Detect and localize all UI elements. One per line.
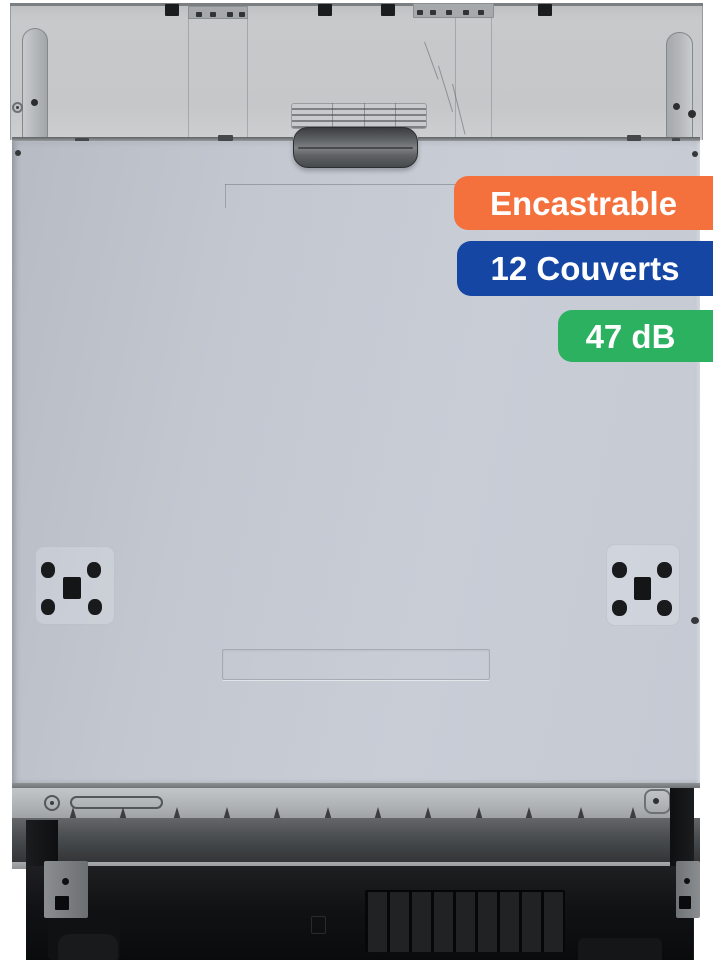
underside-shadow-panel bbox=[12, 818, 700, 866]
top-slot bbox=[318, 4, 332, 16]
vent-divider bbox=[364, 103, 365, 129]
badge-noise-level-label: 47 dB bbox=[586, 320, 676, 353]
badge-couverts-label: 12 Couverts bbox=[491, 252, 680, 285]
dishwasher-product-image: Encastrable 12 Couverts 47 dB bbox=[0, 0, 713, 960]
door-film-seam bbox=[225, 184, 226, 208]
screw-hole bbox=[657, 600, 672, 616]
leveling-bracket-right bbox=[676, 861, 700, 918]
bracket-hole bbox=[430, 10, 436, 15]
panel-seam bbox=[491, 18, 492, 138]
screw-hole bbox=[41, 599, 55, 615]
panel-seam bbox=[455, 18, 456, 138]
side-mounting-rail-right bbox=[666, 32, 693, 139]
vent-grille bbox=[291, 103, 427, 129]
side-mounting-rail-left bbox=[22, 28, 48, 139]
base-wheel-left bbox=[58, 934, 118, 960]
bracket-dot bbox=[62, 878, 69, 885]
door-handle-crease bbox=[298, 147, 413, 149]
screw-ring bbox=[12, 102, 23, 113]
bracket-hole bbox=[478, 10, 484, 15]
adjustment-slot bbox=[70, 796, 163, 809]
base-foot-right bbox=[578, 938, 662, 960]
door-pin-dot bbox=[691, 617, 699, 624]
bracket-hole bbox=[210, 12, 216, 17]
bracket-hole bbox=[417, 10, 423, 15]
door-pin-dot bbox=[692, 151, 698, 157]
badge-couverts: 12 Couverts bbox=[457, 241, 713, 296]
base-square-hole bbox=[311, 916, 326, 934]
screw-hole bbox=[88, 599, 102, 615]
top-slot bbox=[381, 4, 395, 16]
screw-hole bbox=[87, 562, 101, 578]
bracket-hole bbox=[239, 12, 245, 17]
bracket-dot bbox=[684, 878, 690, 884]
screw-hole bbox=[657, 562, 672, 578]
screw-hole bbox=[41, 562, 55, 578]
square-cutout bbox=[634, 577, 651, 600]
badge-encastrable: Encastrable bbox=[454, 176, 713, 230]
bracket-square-hole bbox=[55, 896, 69, 910]
hinge-circle bbox=[44, 795, 60, 811]
top-slot bbox=[538, 4, 552, 16]
screw-dot bbox=[688, 110, 696, 118]
bracket-hole bbox=[463, 10, 469, 15]
badge-encastrable-label: Encastrable bbox=[490, 187, 677, 220]
bracket-square-hole bbox=[679, 896, 691, 909]
bracket-hole bbox=[227, 12, 233, 17]
door-pin-dot bbox=[15, 150, 21, 156]
badge-noise-level: 47 dB bbox=[558, 310, 713, 362]
vent-divider bbox=[332, 103, 333, 129]
bracket-hole bbox=[446, 10, 452, 15]
hinge-dot bbox=[653, 798, 659, 804]
screw-hole bbox=[612, 600, 627, 616]
door-embossed-recess bbox=[222, 649, 490, 680]
square-cutout bbox=[63, 577, 81, 599]
panel-seam bbox=[188, 18, 189, 138]
panel-seam bbox=[247, 18, 248, 138]
base-ribbed-block bbox=[365, 890, 565, 952]
screw-hole bbox=[612, 562, 627, 578]
screw-dot bbox=[31, 99, 38, 106]
door-panel bbox=[12, 141, 700, 786]
top-slot bbox=[165, 4, 179, 16]
bracket-hole bbox=[196, 12, 202, 17]
vent-divider bbox=[395, 103, 396, 129]
screw-dot bbox=[673, 103, 680, 110]
